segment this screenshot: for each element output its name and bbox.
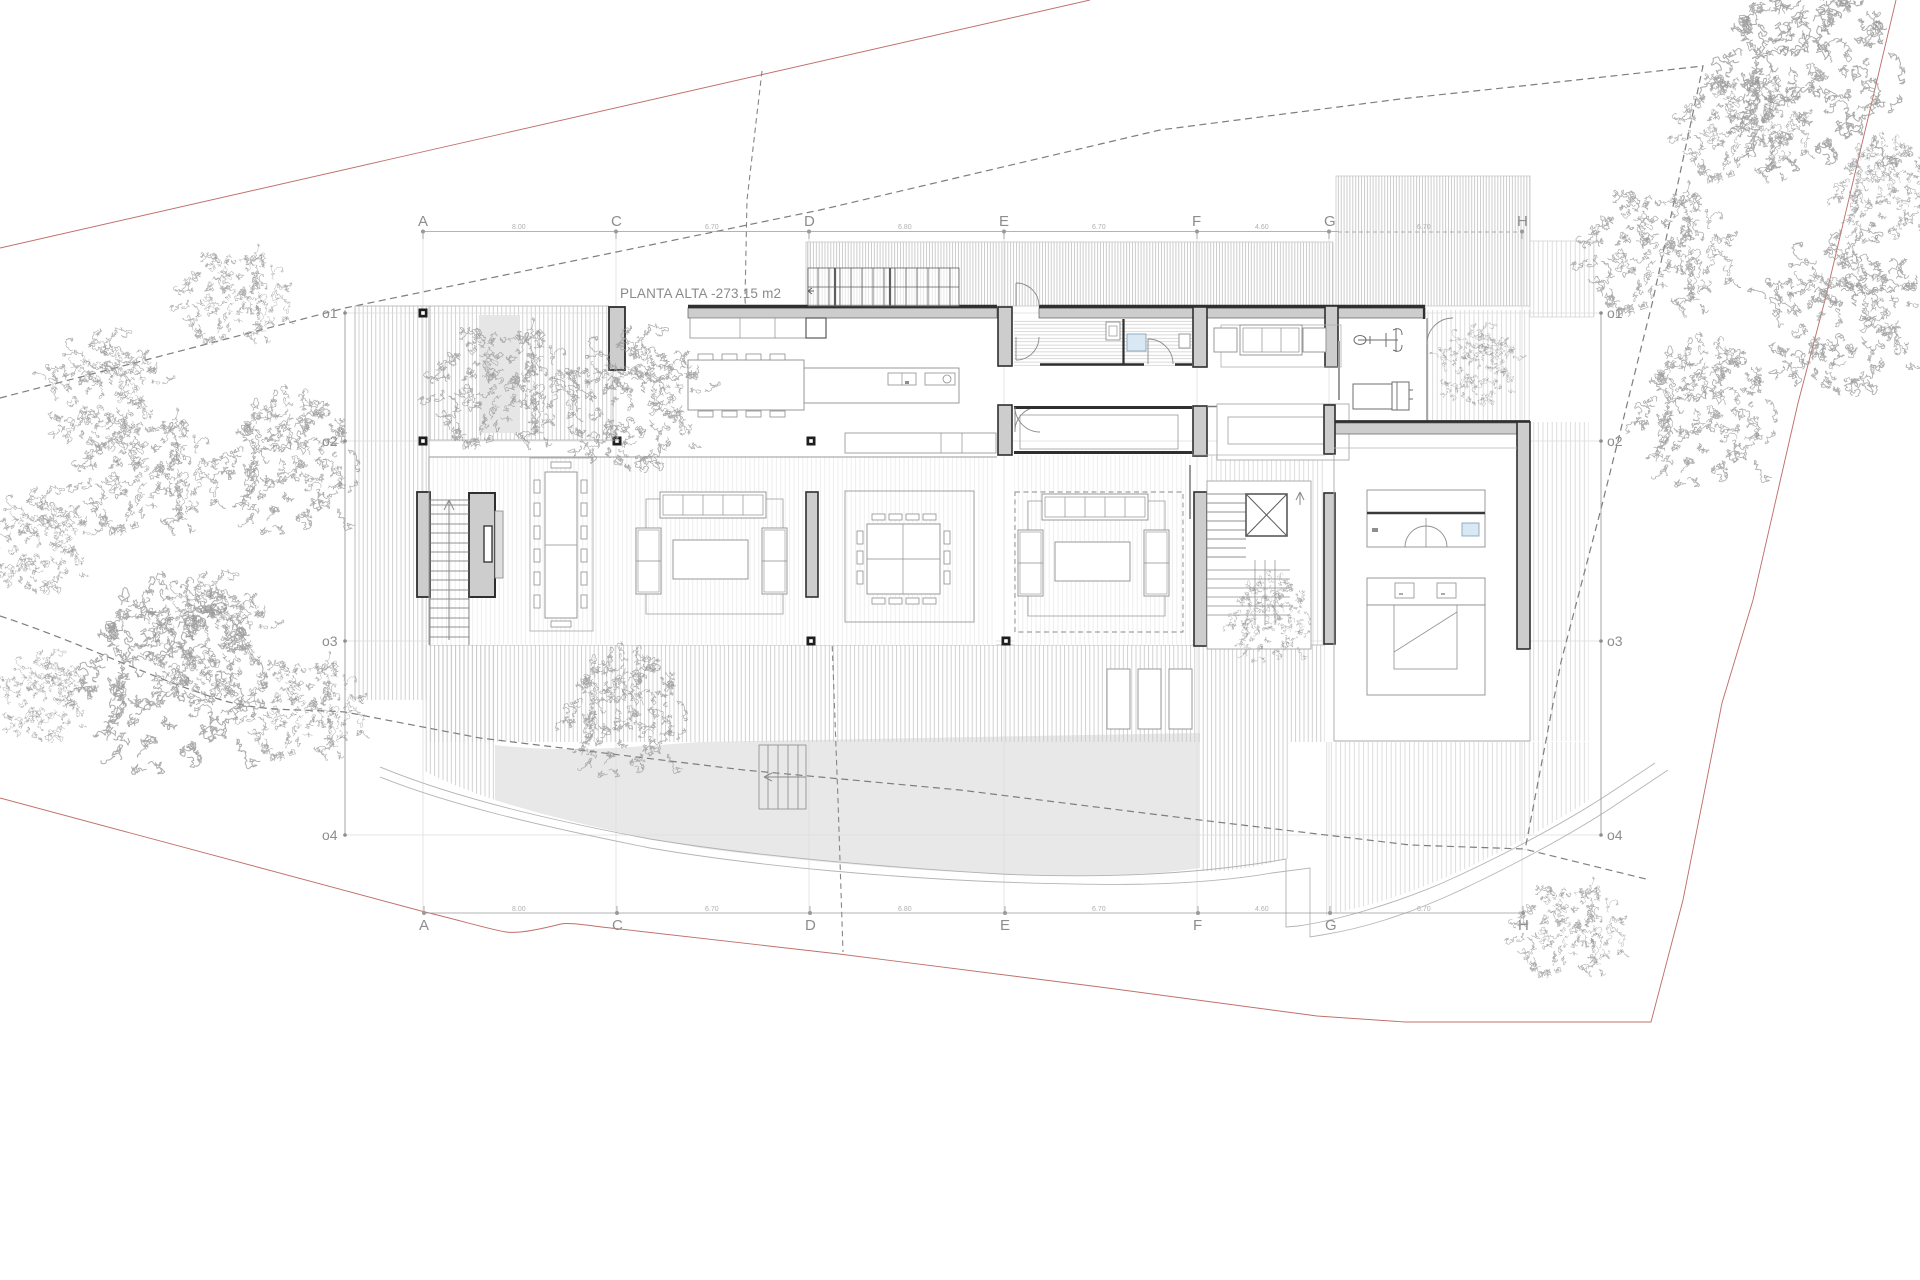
svg-text:o1: o1 bbox=[322, 305, 338, 321]
svg-text:D: D bbox=[804, 213, 815, 230]
svg-text:6.80: 6.80 bbox=[898, 224, 912, 231]
svg-text:6.80: 6.80 bbox=[898, 906, 912, 913]
svg-text:4.60: 4.60 bbox=[1255, 224, 1269, 231]
svg-text:6.70: 6.70 bbox=[705, 224, 719, 231]
svg-text:o2: o2 bbox=[1607, 433, 1623, 449]
svg-text:A: A bbox=[419, 917, 429, 934]
svg-text:PLANTA ALTA -273.15 m2: PLANTA ALTA -273.15 m2 bbox=[620, 286, 781, 301]
svg-text:6.70: 6.70 bbox=[1092, 906, 1106, 913]
svg-text:A: A bbox=[418, 213, 428, 230]
svg-text:E: E bbox=[999, 213, 1009, 230]
svg-text:6.70: 6.70 bbox=[1092, 224, 1106, 231]
svg-text:o4: o4 bbox=[1607, 827, 1623, 843]
svg-text:H: H bbox=[1517, 213, 1528, 230]
svg-text:o4: o4 bbox=[322, 827, 338, 843]
svg-text:G: G bbox=[1325, 917, 1337, 934]
svg-text:4.60: 4.60 bbox=[1255, 906, 1269, 913]
svg-text:C: C bbox=[611, 213, 622, 230]
svg-text:8.00: 8.00 bbox=[512, 224, 526, 231]
svg-text:D: D bbox=[805, 917, 816, 934]
svg-text:6.70: 6.70 bbox=[1417, 224, 1431, 231]
svg-text:6.70: 6.70 bbox=[705, 906, 719, 913]
svg-text:o3: o3 bbox=[322, 633, 338, 649]
svg-text:C: C bbox=[612, 917, 623, 934]
svg-text:F: F bbox=[1193, 917, 1202, 934]
svg-text:E: E bbox=[1000, 917, 1010, 934]
svg-text:G: G bbox=[1324, 213, 1336, 230]
svg-text:8.00: 8.00 bbox=[512, 906, 526, 913]
svg-text:6.70: 6.70 bbox=[1417, 906, 1431, 913]
svg-text:F: F bbox=[1192, 213, 1201, 230]
svg-text:o3: o3 bbox=[1607, 633, 1623, 649]
